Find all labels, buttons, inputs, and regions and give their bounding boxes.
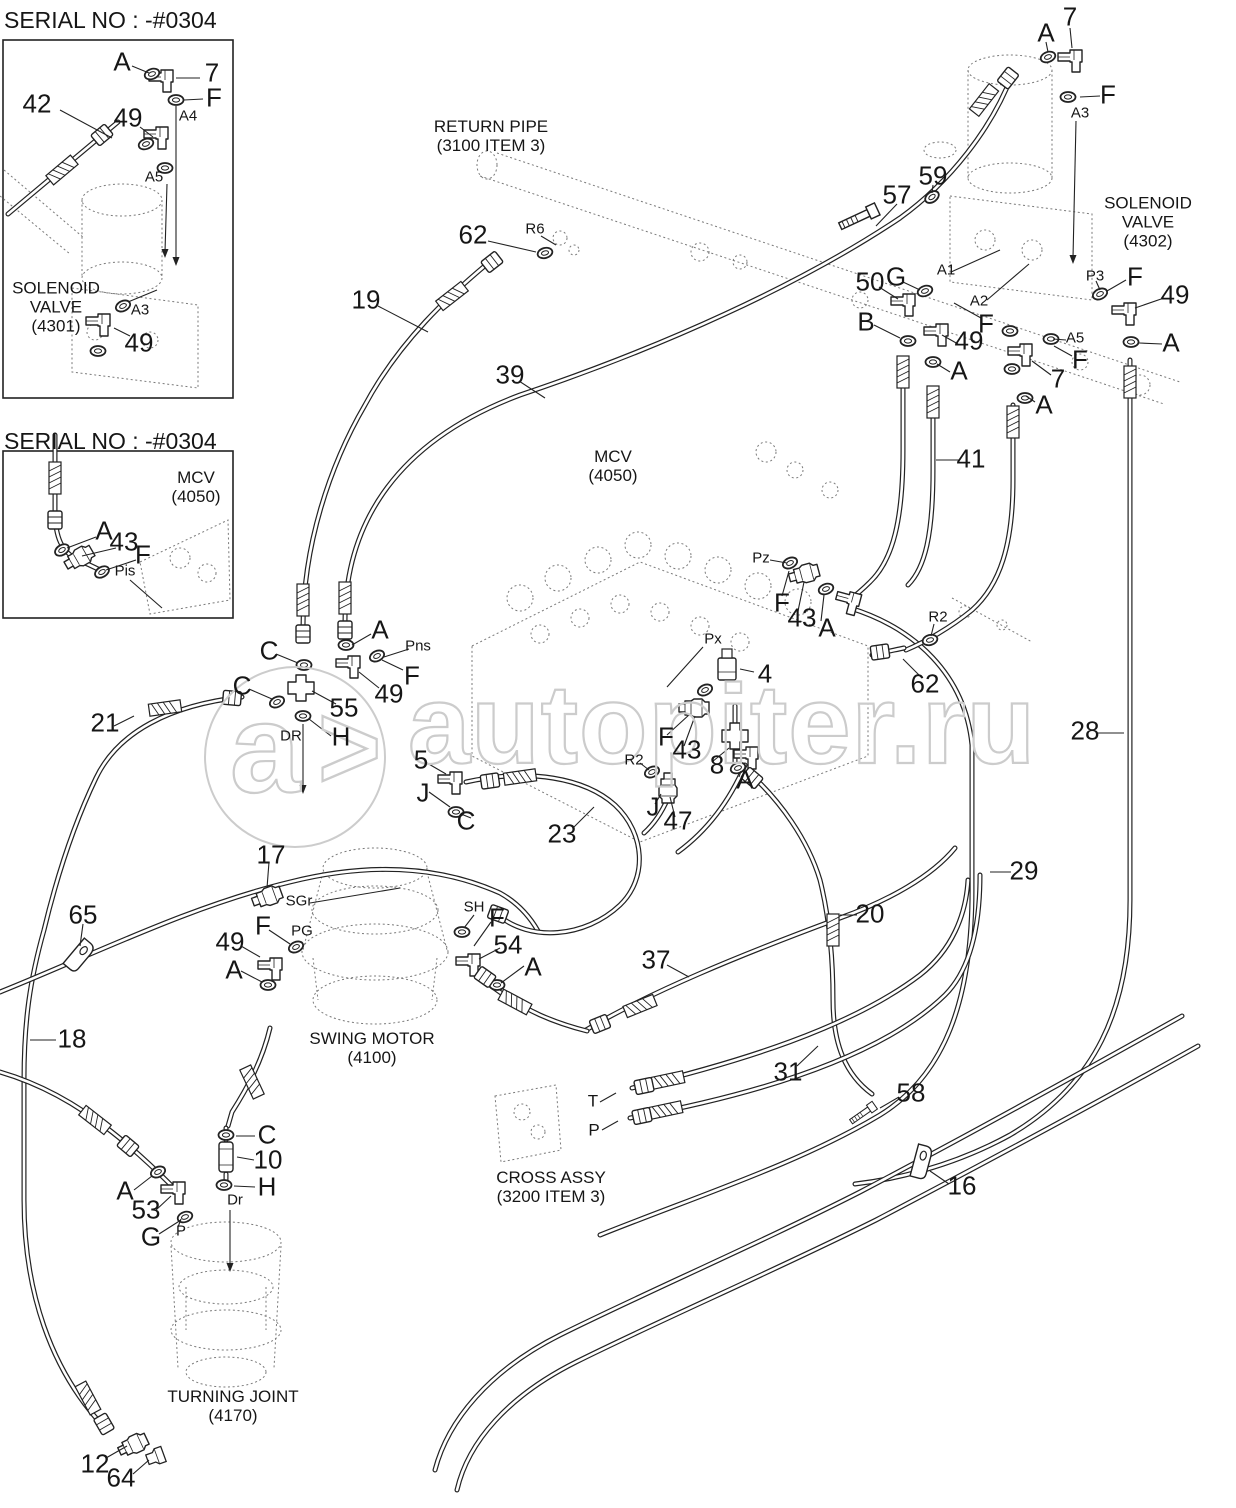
callout-21: 21 [91,708,120,737]
ref-label-a3: A3 [131,303,149,320]
callout-54: 54 [494,930,523,959]
component-label-mcv-4050: MCV (4050) [588,447,637,485]
ref-label-a: A [736,765,753,794]
callout-50: 50 [856,267,885,296]
ref-label-a1: A1 [937,263,955,280]
callout-49: 49 [125,328,154,357]
serial-title-serial-no-0304: SERIAL NO : -#0304 [4,8,217,34]
ref-label-f: F [1072,345,1088,374]
ref-label-f: F [255,911,271,940]
callout-49: 49 [955,326,984,355]
component-label-mcv-4050: MCV (4050) [171,468,220,506]
component-label-solenoid-valve-4302: SOLENOID VALVE (4302) [1104,193,1192,250]
ref-label-c: C [457,806,476,835]
ref-label-g: G [886,262,906,291]
ref-label-h: H [332,722,351,751]
ref-label-px: Px [704,632,722,649]
ref-label-a: A [818,613,835,642]
callout-53: 53 [132,1195,161,1224]
ref-label-a: A [1035,390,1052,419]
ref-label-a: A [225,955,242,984]
ref-label-r6: R6 [525,222,544,239]
callout-39: 39 [496,360,525,389]
callout-5: 5 [414,745,428,774]
callout-57: 57 [883,180,912,209]
callout-37: 37 [642,945,671,974]
callout-49: 49 [114,103,143,132]
callout-8: 8 [710,750,724,779]
ref-label-sgr: SGr [286,894,313,911]
callout-18: 18 [58,1024,87,1053]
ref-label-a: A [1037,18,1054,47]
ref-label-f: F [1100,80,1116,109]
ref-label-a: A [371,615,388,644]
callout-20: 20 [856,899,885,928]
ref-label-f: F [1127,262,1143,291]
ref-label-r2: R2 [624,753,643,770]
ref-label-a4: A4 [179,109,197,126]
ref-label-h: H [258,1172,277,1201]
callout-62: 62 [459,220,488,249]
callout-58: 58 [897,1078,926,1107]
component-label-cross-assy-3200-item-3: CROSS ASSY (3200 ITEM 3) [496,1168,606,1206]
callout-16: 16 [948,1171,977,1200]
ref-label-a: A [113,47,130,76]
ref-label-sh: SH [464,900,485,917]
ref-label-r2: R2 [928,610,947,627]
callout-7: 7 [1063,2,1077,31]
callout-7: 7 [1051,364,1065,393]
component-label-return-pipe-3100-item-3: RETURN PIPE (3100 ITEM 3) [434,117,548,155]
component-label-turning-joint-4170: TURNING JOINT (4170) [167,1387,298,1425]
ref-label-dr: DR [280,729,302,746]
ref-label-p3: P3 [1086,269,1104,286]
ref-label-a: A [950,356,967,385]
callout-41: 41 [957,444,986,473]
ref-label-a5: A5 [145,170,163,187]
ref-label-f: F [489,903,505,932]
ref-label-a: A [1162,328,1179,357]
ref-label-a3: A3 [1071,106,1089,123]
callout-55: 55 [330,693,359,722]
callout-65: 65 [69,900,98,929]
ref-label-j: J [417,778,430,807]
ref-label-c: C [260,636,279,665]
ref-label-j: J [647,792,660,821]
component-label-swing-motor-4100: SWING MOTOR (4100) [309,1029,434,1067]
callout-42: 42 [23,89,52,118]
ref-label-b: B [857,307,874,336]
ref-label-p: P [176,1224,186,1241]
callout-12: 12 [81,1449,110,1478]
callout-23: 23 [548,819,577,848]
callout-64: 64 [107,1463,136,1492]
callout-19: 19 [352,285,381,314]
callout-62: 62 [911,669,940,698]
diagram-labels: SERIAL NO : -#0304A7FA44249A5SOLENOID VA… [0,0,1236,1508]
callout-10: 10 [254,1145,283,1174]
callout-59: 59 [919,161,948,190]
callout-49: 49 [216,927,245,956]
parts-diagram-page: a > autopiter.ru SERIAL NO : -#0304A7FA4… [0,0,1236,1508]
ref-label-c: C [233,671,252,700]
callout-43: 43 [673,735,702,764]
ref-label-pg: PG [291,924,313,941]
callout-49: 49 [1161,280,1190,309]
ref-label-pz: Pz [752,551,770,568]
callout-47: 47 [664,806,693,835]
callout-4: 4 [758,659,772,688]
callout-31: 31 [774,1057,803,1086]
serial-title-serial-no-0304: SERIAL NO : -#0304 [4,429,217,455]
ref-label-g: G [141,1222,161,1251]
callout-49: 49 [375,679,404,708]
ref-label-a: A [524,952,541,981]
ref-label-pns: Pns [405,639,431,656]
ref-label-f: F [135,540,151,569]
ref-label-p: P [588,1120,599,1139]
ref-label-t: T [588,1091,598,1110]
ref-label-pis: Pis [115,564,136,581]
callout-28: 28 [1071,716,1100,745]
callout-17: 17 [257,840,286,869]
callout-29: 29 [1010,856,1039,885]
callout-43: 43 [788,603,817,632]
component-label-solenoid-valve-4301: SOLENOID VALVE (4301) [12,278,100,335]
ref-label-f: F [206,83,222,112]
ref-label-dr: Dr [227,1193,243,1210]
ref-label-f: F [404,661,420,690]
